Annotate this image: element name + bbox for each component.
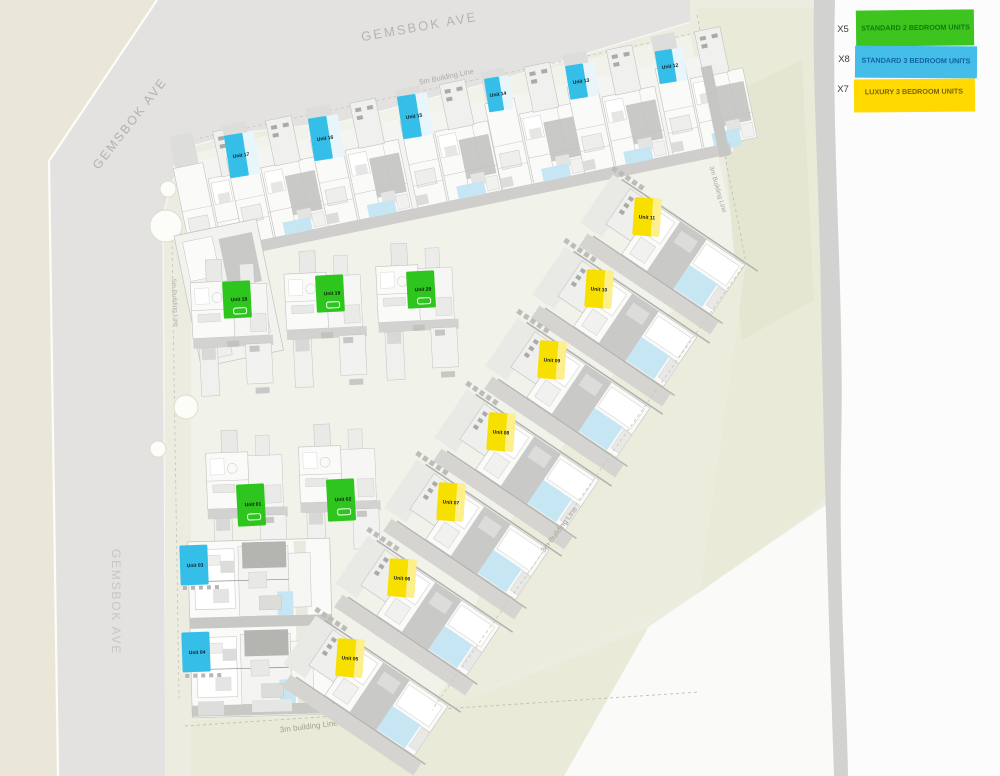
svg-text:Unit 01: Unit 01 [245,501,262,508]
svg-text:Unit 11: Unit 11 [639,214,656,221]
svg-text:Unit 02: Unit 02 [335,496,352,503]
svg-text:X7: X7 [837,84,849,95]
svg-text:Unit 04: Unit 04 [189,650,206,657]
svg-text:Unit 05: Unit 05 [341,655,358,662]
svg-text:Unit 09: Unit 09 [543,357,560,364]
svg-text:X8: X8 [838,54,850,65]
svg-text:Unit 20: Unit 20 [415,286,432,293]
svg-text:Unit 06: Unit 06 [393,575,410,582]
svg-text:Unit 10: Unit 10 [590,286,607,293]
svg-text:Unit 07: Unit 07 [442,499,459,506]
svg-text:Unit 19: Unit 19 [324,290,341,297]
svg-text:Unit 18: Unit 18 [231,296,248,303]
svg-text:STANDARD 3 BEDROOM UNITS: STANDARD 3 BEDROOM UNITS [862,56,971,66]
svg-text:STANDARD 2 BEDROOM UNITS: STANDARD 2 BEDROOM UNITS [861,22,970,32]
svg-text:LUXURY 3 BEDROOM UNITS: LUXURY 3 BEDROOM UNITS [865,87,964,97]
svg-text:X5: X5 [837,24,849,35]
svg-text:GEMSBOK AVE: GEMSBOK AVE [109,549,123,655]
svg-text:Unit 08: Unit 08 [492,429,509,436]
svg-text:Unit 03: Unit 03 [187,563,204,570]
